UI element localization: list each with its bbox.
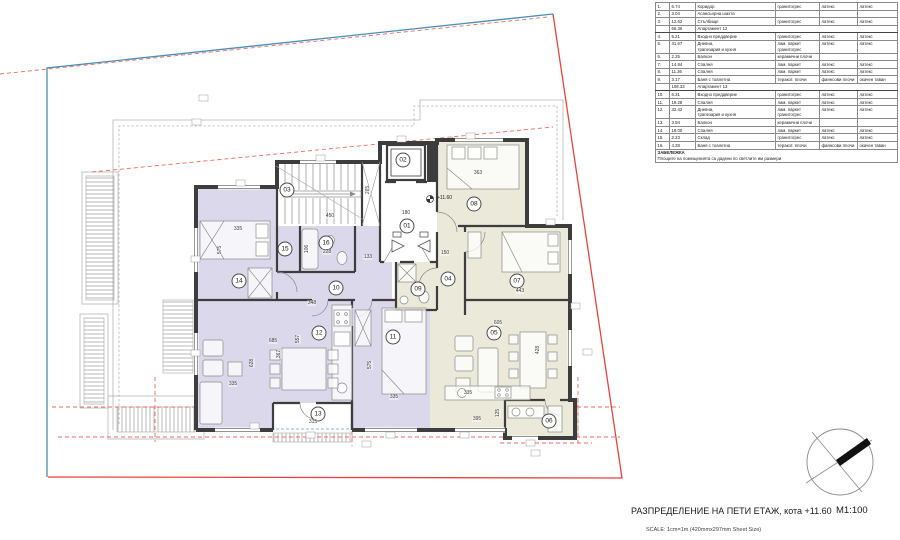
table-cell: 4.28	[670, 142, 696, 150]
room-label-09: 09	[411, 282, 426, 297]
dimension-label: 605	[493, 320, 502, 326]
table-cell: 31.67	[670, 40, 696, 53]
room-label-10: 10	[329, 281, 344, 296]
table-row: 4.5.21Входно преддвериегранитогреслатекс…	[656, 33, 898, 41]
dimension-label: 180	[401, 210, 410, 216]
dimension-label: 335	[233, 226, 242, 232]
table-cell: 11.36	[670, 68, 696, 76]
dimension-label: 685	[268, 338, 277, 344]
table-note-row: ЗАБЕЛЕЖКА Площите на помещенията са даде…	[656, 149, 898, 162]
table-cell: 6.74	[670, 3, 696, 11]
table-cell: латекс	[820, 91, 858, 99]
drawing-scale-note: SCALE: 1cm=1m (420mmx297mm Sheet Size)	[646, 527, 761, 533]
dimension-label: 315	[308, 419, 317, 425]
table-cell: 3.04	[670, 10, 696, 18]
dimension-label: 265	[365, 185, 371, 194]
table-cell: Балкон	[696, 119, 776, 127]
dimension-label: 428	[535, 345, 541, 354]
table-cell: 16.	[656, 142, 670, 150]
table-cell: Баня с тоалетна	[696, 142, 776, 150]
table-cell: Апартамент 12	[696, 25, 898, 33]
dimension-label: 557	[295, 334, 301, 343]
table-cell: 5.	[656, 40, 670, 53]
table-cell	[820, 119, 858, 127]
room-label-11: 11	[386, 330, 401, 345]
dimension-label: 335	[228, 381, 237, 387]
dimension-label: 133	[363, 254, 372, 260]
table-cell: теракот. плочи	[776, 76, 820, 84]
table-cell: латекс	[858, 40, 898, 53]
table-cell	[858, 53, 898, 61]
table-cell: 8.	[656, 68, 670, 76]
room-label-03: 03	[280, 183, 295, 198]
table-cell: лам. паркет гранитогрес	[776, 106, 820, 119]
room-label-04: 04	[441, 272, 456, 287]
table-row: 1.6.74Коридоргранитогреслатекслатекс	[656, 3, 898, 11]
table-cell: 15.	[656, 134, 670, 142]
table-row: 8.11.36Спалнялам. паркетлатекслатекс	[656, 68, 898, 76]
table-cell	[656, 25, 670, 33]
table-row: 6.2.25Балконкерамични плочи	[656, 53, 898, 61]
table-cell: 3.	[656, 18, 670, 26]
table-cell: латекс	[858, 134, 898, 142]
table-cell: 11.	[656, 98, 670, 106]
table-cell: лам. паркет	[776, 68, 820, 76]
room-label-06: 06	[542, 414, 557, 429]
table-cell: Дневна, трапезария и кухня	[696, 106, 776, 119]
table-cell: 66.36	[670, 25, 696, 33]
table-cell: Дневна, трапезария и кухня	[696, 40, 776, 53]
table-cell: фаянсови плочи	[820, 76, 858, 84]
table-cell: латекс	[858, 61, 898, 69]
table-cell	[858, 10, 898, 18]
table-cell: 12.	[656, 106, 670, 119]
table-cell: 14.	[656, 126, 670, 134]
dimension-label: 367	[276, 349, 282, 358]
table-cell: Входно преддверие	[696, 91, 776, 99]
drawing-sheet: 0102030405060708091011121314151633557545…	[0, 0, 900, 540]
table-cell: 2.23	[670, 134, 696, 142]
table-cell: окачен таван	[858, 142, 898, 150]
table-cell	[858, 119, 898, 127]
table-cell: латекс	[858, 106, 898, 119]
table-cell: латекс	[820, 68, 858, 76]
table-cell: латекс	[858, 98, 898, 106]
room-label-07: 07	[510, 274, 525, 289]
table-cell: 5.21	[670, 33, 696, 41]
dimension-label: 106	[304, 244, 310, 253]
table-row: 14.18.00Спалнялам. паркетлатекслатекс	[656, 126, 898, 134]
room-label-01: 01	[400, 219, 415, 234]
table-cell: 2.25	[670, 53, 696, 61]
table-cell: 2.	[656, 10, 670, 18]
table-row: 5.31.67Дневна, трапезария и кухнялам. па…	[656, 40, 898, 53]
table-note-cell: ЗАБЕЛЕЖКА Площите на помещенията са даде…	[656, 149, 898, 162]
table-cell: Спалня	[696, 61, 776, 69]
dimension-label: 125	[495, 408, 501, 417]
table-cell: гранитогрес	[776, 91, 820, 99]
table-cell	[776, 10, 820, 18]
table-cell: латекс	[858, 18, 898, 26]
table-cell	[656, 83, 670, 91]
table-cell: 3.17	[670, 76, 696, 84]
table-cell: латекс	[820, 126, 858, 134]
room-label-14: 14	[232, 274, 247, 289]
table-row: 10.6.31Входно преддвериегранитогреслатек…	[656, 91, 898, 99]
table-cell: Коридор	[696, 3, 776, 11]
table-row: 7.14.84Спалнялам. паркетлатекслатекс	[656, 61, 898, 69]
table-cell: 10.	[656, 91, 670, 99]
table-cell: 14.84	[670, 61, 696, 69]
level-marker-icon	[427, 196, 434, 203]
table-cell: 12.62	[670, 18, 696, 26]
table-cell: фаянсови плочи	[820, 142, 858, 150]
table-cell: 13.	[656, 119, 670, 127]
dimension-label: 335	[389, 394, 398, 400]
table-cell: Спалня	[696, 126, 776, 134]
table-cell: гранитогрес	[776, 18, 820, 26]
room-label-12: 12	[312, 326, 327, 341]
table-cell: латекс	[858, 126, 898, 134]
table-cell: Стълбище	[696, 18, 776, 26]
table-cell: лам. паркет	[776, 98, 820, 106]
table-cell: окачен таван	[858, 76, 898, 84]
table-cell: латекс	[820, 33, 858, 41]
table-cell: латекс	[820, 98, 858, 106]
dimension-label: 443	[515, 288, 524, 294]
room-label-05: 05	[487, 326, 502, 341]
table-cell: гранитогрес	[776, 33, 820, 41]
table-row: 16.4.28Баня с тоалетнатеракот. плочифаян…	[656, 142, 898, 150]
table-cell: латекс	[858, 68, 898, 76]
table-cell: Балкон	[696, 53, 776, 61]
table-row: 2.3.04Асансьорна шахта	[656, 10, 898, 18]
table-cell: 32.42	[670, 106, 696, 119]
table-cell: гранитогрес	[776, 134, 820, 142]
dimension-label: 395	[472, 416, 481, 422]
table-cell: Апартамент 13	[696, 83, 898, 91]
table-cell: Асансьорна шахта	[696, 10, 776, 18]
table-cell: 4.	[656, 33, 670, 41]
drawing-title: РАЗПРЕДЕЛЕНИЕ НА ПЕТИ ЕТАЖ, кота +11.60	[631, 506, 832, 516]
table-cell: 108.33	[670, 83, 696, 91]
dimension-label: 575	[217, 245, 223, 254]
note-title: ЗАБЕЛЕЖКА	[658, 150, 685, 155]
room-label-08: 08	[467, 197, 482, 212]
dimension-label: 363	[473, 170, 482, 176]
table-row: 15.2.23Складгранитогреслатекслатекс	[656, 134, 898, 142]
table-cell: лам. паркет	[776, 126, 820, 134]
table-cell: теракот. плочи	[776, 142, 820, 150]
table-cell: лам. паркет	[776, 61, 820, 69]
room-label-15: 15	[278, 242, 293, 257]
table-summary-row: 108.33Апартамент 13	[656, 83, 898, 91]
table-cell: латекс	[858, 91, 898, 99]
level-mark-label: +11.60	[437, 195, 452, 201]
drawing-scale: М1:100	[836, 505, 868, 516]
dimension-label: 450	[325, 213, 334, 219]
table-cell: 9.	[656, 76, 670, 84]
table-cell: латекс	[820, 18, 858, 26]
dimension-label: 335	[463, 390, 472, 396]
dimension-label: 575	[367, 360, 373, 369]
room-schedule-body: 1.6.74Коридоргранитогреслатекслатекс2.3.…	[656, 3, 898, 163]
table-summary-row: 66.36Апартамент 12	[656, 25, 898, 33]
room-schedule-table: 1.6.74Коридоргранитогреслатекслатекс2.3.…	[655, 2, 898, 163]
table-cell: латекс	[820, 3, 858, 11]
table-row: 11.19.28Спалнялам. паркетлатекслатекс	[656, 98, 898, 106]
table-cell: гранитогрес	[776, 3, 820, 11]
table-row: 9.3.17Баня с тоалетнатеракот. плочифаянс…	[656, 76, 898, 84]
table-cell: 1.	[656, 3, 670, 11]
table-cell	[820, 10, 858, 18]
table-row: 3.12.62Стълбищегранитогреслатекслатекс	[656, 18, 898, 26]
table-cell: латекс	[820, 40, 858, 53]
table-cell: Входно преддверие	[696, 33, 776, 41]
table-cell: латекс	[820, 134, 858, 142]
table-cell: латекс	[858, 3, 898, 11]
table-cell: 6.31	[670, 91, 696, 99]
table-cell: 3.94	[670, 119, 696, 127]
table-cell: Спалня	[696, 98, 776, 106]
dimension-label: 628	[249, 358, 255, 367]
room-label-02: 02	[396, 153, 411, 168]
table-cell: керамични плочи	[776, 119, 820, 127]
table-cell: латекс	[858, 33, 898, 41]
table-cell: Спалня	[696, 68, 776, 76]
dimension-label: 150	[440, 250, 449, 256]
table-cell: Склад	[696, 134, 776, 142]
table-cell: латекс	[820, 106, 858, 119]
table-cell	[820, 53, 858, 61]
table-row: 12.32.42Дневна, трапезария и кухнялам. п…	[656, 106, 898, 119]
table-cell: керамични плочи	[776, 53, 820, 61]
dimension-label: 228	[322, 249, 331, 255]
table-cell: Баня с тоалетна	[696, 76, 776, 84]
table-cell: 7.	[656, 61, 670, 69]
dimension-label: 348	[307, 300, 316, 306]
table-cell: 19.28	[670, 98, 696, 106]
table-cell: латекс	[820, 61, 858, 69]
table-row: 13.3.94Балконкерамични плочи	[656, 119, 898, 127]
table-cell: 18.00	[670, 126, 696, 134]
north-compass-icon	[806, 429, 873, 495]
table-cell: 6.	[656, 53, 670, 61]
table-cell: лам. паркет гранитогрес	[776, 40, 820, 53]
